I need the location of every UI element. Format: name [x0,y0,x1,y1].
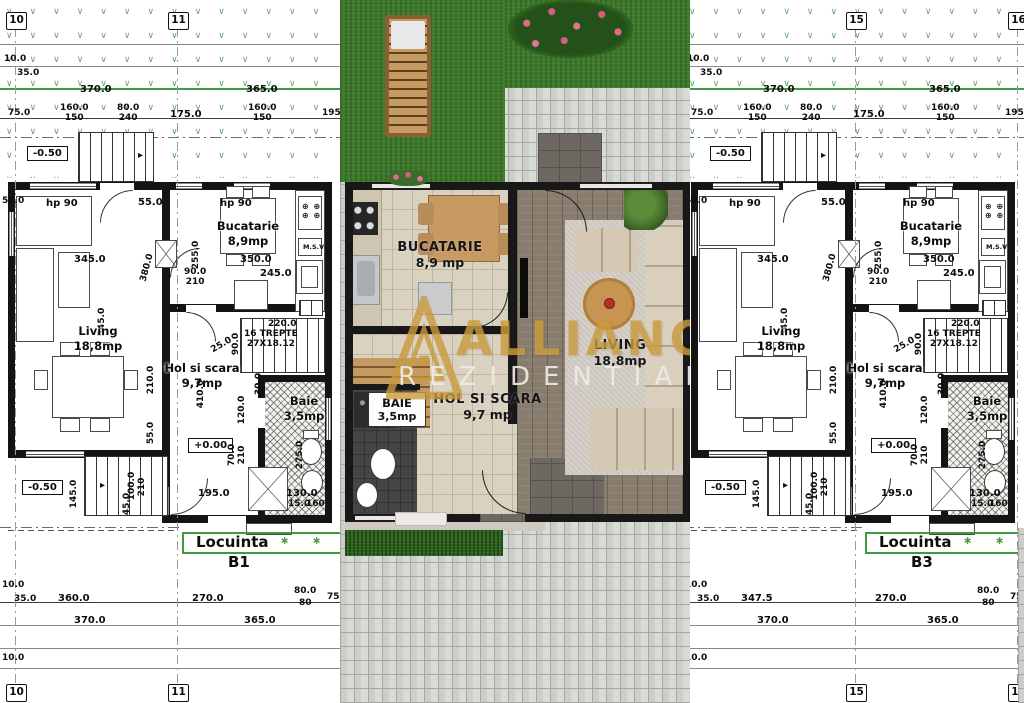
dimension-label: 345.0 [757,254,789,265]
dimension-label: 50.0 [2,197,24,207]
floor-plan-sheet: ∨∨∨∨∨∨∨∨∨∨∨∨∨∨∨∨∨∨∨∨∨∨∨∨∨∨∨∨∨∨∨∨∨∨∨∨∨∨∨∨… [0,0,1024,703]
plan-winh [709,450,767,458]
dimension-label: 210.0 [830,366,840,394]
dimension-label: 255.0 [192,241,202,269]
dimension-label: 130.0 [286,488,318,499]
dimension-label: 80.0 240 [117,104,139,124]
dimension-label: 175.0 [170,109,202,120]
plan-hline [0,668,341,669]
plan-open [783,183,817,190]
paver-edge [1018,528,1024,703]
plan-furn [935,186,953,198]
dimension-label: 195.0 [198,488,230,499]
dimension-label: 370.0 [74,615,106,626]
plan-furn [234,280,268,310]
plan-winh [859,182,885,190]
dimension-label: 245.0 [943,268,975,279]
grid-bubble: 16 [1008,12,1024,30]
plan-winh [30,182,96,190]
room-name: HOL SI SCARA [425,392,550,407]
dimension-label: hp 90 [220,198,252,209]
plant [624,188,668,230]
plan-furn [909,186,927,198]
dimension-label: 45.0 [123,493,133,515]
room-label-living: Living 18,8mp [58,324,138,354]
plan-open [186,305,216,312]
dimension-label: ∗ [312,535,321,547]
room-label-living: LIVING 18,8mp [565,338,675,368]
plan-open [100,183,134,190]
room-area: 3,5mp [371,410,423,423]
dimension-label: 80 [982,599,995,609]
plan-dashh [8,530,176,531]
floor-plan-unit-b1: ∨∨∨∨∨∨∨∨∨∨∨∨∨∨∨∨∨∨∨∨∨∨∨∨∨∨∨∨∨∨∨∨∨∨∨∨∨∨∨∨… [0,0,341,703]
sofa [645,225,683,425]
dimension-label: 75.0 [691,109,713,119]
plan-hline [683,648,1024,649]
wall [683,182,690,522]
dimension-label: 370.0 [80,84,112,95]
dimension-label: 347.5 [741,593,773,604]
plan-hline [683,668,1024,669]
plan-open [258,398,265,428]
dimension-label: ∗ [280,535,289,547]
stove-icon: ⊕ ⊕ ⊕ ⊕ [302,202,321,220]
dimension-label: ∗ [995,535,1004,547]
plan-furn [717,370,731,390]
room-label-kitchen: Bucatarie 8,9mp [206,219,290,249]
dimension-label: 210 [821,478,831,497]
dimension-label: 360.0 [58,593,90,604]
plan-furn [226,186,244,198]
plan-arc [100,190,133,223]
plan-furn [124,370,138,390]
grid-axis-line [15,28,16,692]
dimension-label: 210 [921,446,931,465]
wall [345,384,420,390]
dimension-label: ▸ [100,480,105,491]
dimension-label: 30.0 [938,373,948,395]
plan-winh [713,182,779,190]
room-label-living: Living 18,8mp [741,324,821,354]
dimension-label: ▸ [821,150,826,161]
plan-furn [301,266,318,288]
toilet [370,448,396,480]
grid-bubble: 10 [6,684,27,702]
dimension-label: 195.0 [1005,109,1024,119]
plan-dimline [683,602,1024,603]
dimension-label: 380.0 [823,253,840,283]
plan-stairsh [299,300,323,316]
grid-bubble: 15 [846,684,867,702]
plan-wall [845,515,1015,523]
plan-winh [26,450,84,458]
house-id: B3 [911,554,933,571]
plan-furn [303,430,319,439]
plan-furn [52,356,124,418]
plan-hline [0,44,341,45]
entry-door-opening [480,514,525,522]
room-label-hall: HOL SI SCARA 9,7 mp [425,392,550,422]
plan-stairsh [982,300,1006,316]
dimension-label: 10.0 [2,581,24,591]
dimension-label: 275.0 [296,441,306,469]
plan-wall [941,375,1015,382]
dimension-label: 45.0 [806,493,816,515]
plan-xbox [248,467,288,511]
dimension-label: 55.0 [147,422,157,444]
plan-gline [865,552,1024,554]
dimension-label: 145.0 [70,480,80,508]
dimension-label: 80.0 [977,587,999,597]
dimension-label: 365.0 [244,615,276,626]
elevation-marker: -0.50 [27,146,68,161]
dimension-label: 365.0 [929,84,961,95]
bath-sink [356,482,378,508]
dimension-label: 370.0 [757,615,789,626]
plan-gvline [182,532,184,553]
dimension-label: 55.0 [138,197,163,208]
plan-furn [743,418,763,432]
hedge [345,530,503,556]
dimension-label: 270.0 [192,593,224,604]
plan-wall [258,375,332,382]
plan-furn [90,418,110,432]
plan-winv [8,212,15,256]
grid-bubble: 11 [168,684,189,702]
lounger-pillow [391,21,425,49]
stove-icon: ⊕ ⊕ ⊕ ⊕ [985,202,1004,220]
grid-bubble: 10 [6,12,27,30]
room-label-kitchen: BUCATARIE 8,9 mp [375,240,505,270]
elevation-marker: -0.50 [22,480,63,495]
dimension-label: 80 [299,599,312,609]
rendered-plan-b2: BUCATARIE 8,9 mp LIVING 18,8mp HOL SI SC… [340,0,690,703]
dimension-label: 120.0 [921,396,931,424]
plan-furn [773,418,793,432]
dimension-label: 55.0 [830,422,840,444]
plan-furn [917,280,951,310]
sofa-corner [590,408,683,470]
wall [345,182,353,522]
dimension-label: 365.0 [927,615,959,626]
plan-dashdot [0,527,182,528]
plan-dimline [0,602,341,603]
room-label-kitchen: Bucatarie 8,9mp [889,219,973,249]
dimension-label: 35.0 [700,69,722,79]
dimension-label: 160 [989,500,1008,510]
plan-furn [986,430,1002,439]
elevation-marker: -0.50 [710,146,751,161]
dimension-label: 195.0 [881,488,913,499]
room-label-bath: BAIE 3,5mp [368,392,426,427]
plan-wall [325,182,332,523]
plan-dashdot [683,527,865,528]
dimension-label: 80.0 [294,587,316,597]
dimension-label: 80.0 240 [800,104,822,124]
dimension-label: ∗ [963,535,972,547]
stove [350,202,378,235]
plan-furn [699,248,737,342]
plan-hline [683,44,1024,45]
plan-arc [783,190,816,223]
dimension-label: hp 90 [46,198,78,209]
chair [418,203,434,225]
house-label: Locuinta [196,534,269,551]
plan-open [941,398,948,428]
dimension-label: 10.0 [687,55,709,65]
grid-bubble: 15 [846,12,867,30]
dimension-label: 75.0 [8,109,30,119]
tv [520,258,528,318]
dimension-label: 160 [306,500,325,510]
dimension-label: 35.0 [14,595,36,605]
wall [345,326,517,334]
room-area: 8,9 mp [375,255,505,270]
dimension-label: 365.0 [246,84,278,95]
stairs-note: 16 TREPTE 27X18.12 [927,330,981,350]
dimension-label: 90.0 210 [867,268,889,288]
dimension-label: 75.0 [327,593,341,603]
dimension-label: 160.0 150 [248,104,276,124]
grid-axis-line [177,28,178,692]
plan-furn [34,370,48,390]
room-label-bath: Baie 3,5mp [278,394,330,424]
flower-bush [508,0,633,58]
house-label: Locuinta [879,534,952,551]
dimension-label: 35.0 [17,69,39,79]
dimension-label: 210.0 [147,366,157,394]
dimension-label: 245.0 [260,268,292,279]
sun-lounger [385,15,431,137]
dimension-label: 120.0 [238,396,248,424]
plan-xbox [931,467,971,511]
window [580,183,652,189]
plan-furn [984,266,1001,288]
plan-arc [869,312,899,342]
plan-furn [252,186,270,198]
dimension-label: 90.0 [232,333,242,355]
plan-arc [186,312,216,342]
dimension-label: hp 90 [903,198,935,209]
room-name: LIVING [565,338,675,353]
plan-hline [0,625,341,626]
house-id: B1 [228,554,250,571]
dimension-label: ▸ [783,480,788,491]
dimension-label: 275.0 [979,441,989,469]
room-area: 9,7 mp [425,407,550,422]
plan-dashh [691,530,859,531]
plan-hline [683,625,1024,626]
plan-open [869,305,899,312]
plan-furn [807,370,821,390]
dimension-label: 35.0 [697,595,719,605]
plan-wall [162,515,332,523]
room-label-bath: Baie 3,5mp [961,394,1013,424]
room-area: 18,8mp [565,353,675,368]
stairs-note: 16 TREPTE 27X18.12 [244,330,298,350]
floor-plan-unit-b3: ∨∨∨∨∨∨∨∨∨∨∨∨∨∨∨∨∨∨∨∨∨∨∨∨∨∨∨∨∨∨∨∨∨∨∨∨∨∨∨∨… [683,0,1024,703]
plan-gline [683,88,1024,90]
dimension-label: 210 [138,478,148,497]
planter-box [395,512,447,526]
entry-walk-tiles [538,133,602,185]
dimension-label: 350.0 [240,254,272,265]
dimension-label: 410.0 [197,380,207,408]
plan-winh [176,182,202,190]
fridge [418,282,452,315]
dimension-label: 345.0 [74,254,106,265]
dimension-label: 145.0 [753,480,763,508]
plan-hline [683,66,1024,67]
plan-open [891,516,929,523]
grid-axis-line [855,28,856,692]
dimension-label: 30.0 [255,373,265,395]
plan-hline [0,66,341,67]
dimension-label: 10.0 [4,55,26,65]
plan-dashdot [683,137,1024,138]
wall [508,182,517,332]
dimension-label: 10.0 [2,654,24,664]
window-planter [388,170,428,186]
dimension-label: 175.0 [853,109,885,120]
dimension-label: M.S.V [986,244,1007,251]
grid-bubble: 11 [168,12,189,30]
dimension-label: 160.0 150 [60,104,88,124]
plan-furn [60,418,80,432]
armchair [575,228,637,272]
dimension-label: hp 90 [729,198,761,209]
plan-hline [0,648,341,649]
plan-furn [16,248,54,342]
dimension-label: M.S.V [303,244,324,251]
dimension-label: 130.0 [969,488,1001,499]
elevation-marker: -0.50 [705,480,746,495]
window [355,515,395,521]
room-name: BAIE [371,396,423,410]
plan-gline [0,88,341,90]
dimension-label: 380.0 [140,253,157,283]
dimension-label: 270.0 [875,593,907,604]
plan-open [208,516,246,523]
plan-winv [691,212,698,256]
dimension-label: 160.0 150 [931,104,959,124]
dimension-label: 350.0 [923,254,955,265]
dimension-label: 55.0 [821,197,846,208]
dimension-label: 255.0 [875,241,885,269]
dimension-label: 370.0 [763,84,795,95]
coffee-table [583,278,635,330]
dimension-label: ▸ [138,150,143,161]
dimension-label: 160.0 150 [743,104,771,124]
dimension-label: 195.0 [322,109,341,119]
plan-furn [735,356,807,418]
dimension-label: 210 [238,446,248,465]
dimension-label: 410.0 [880,380,890,408]
plan-gvline [865,532,867,553]
dimension-label: 90.0 [915,333,925,355]
plan-dashdot [0,137,341,138]
plan-wall [1008,182,1015,523]
dimension-label: 90.0 210 [184,268,206,288]
plan-gline [182,552,341,554]
coffee-cup [604,298,615,309]
room-name: BUCATARIE [375,240,505,255]
